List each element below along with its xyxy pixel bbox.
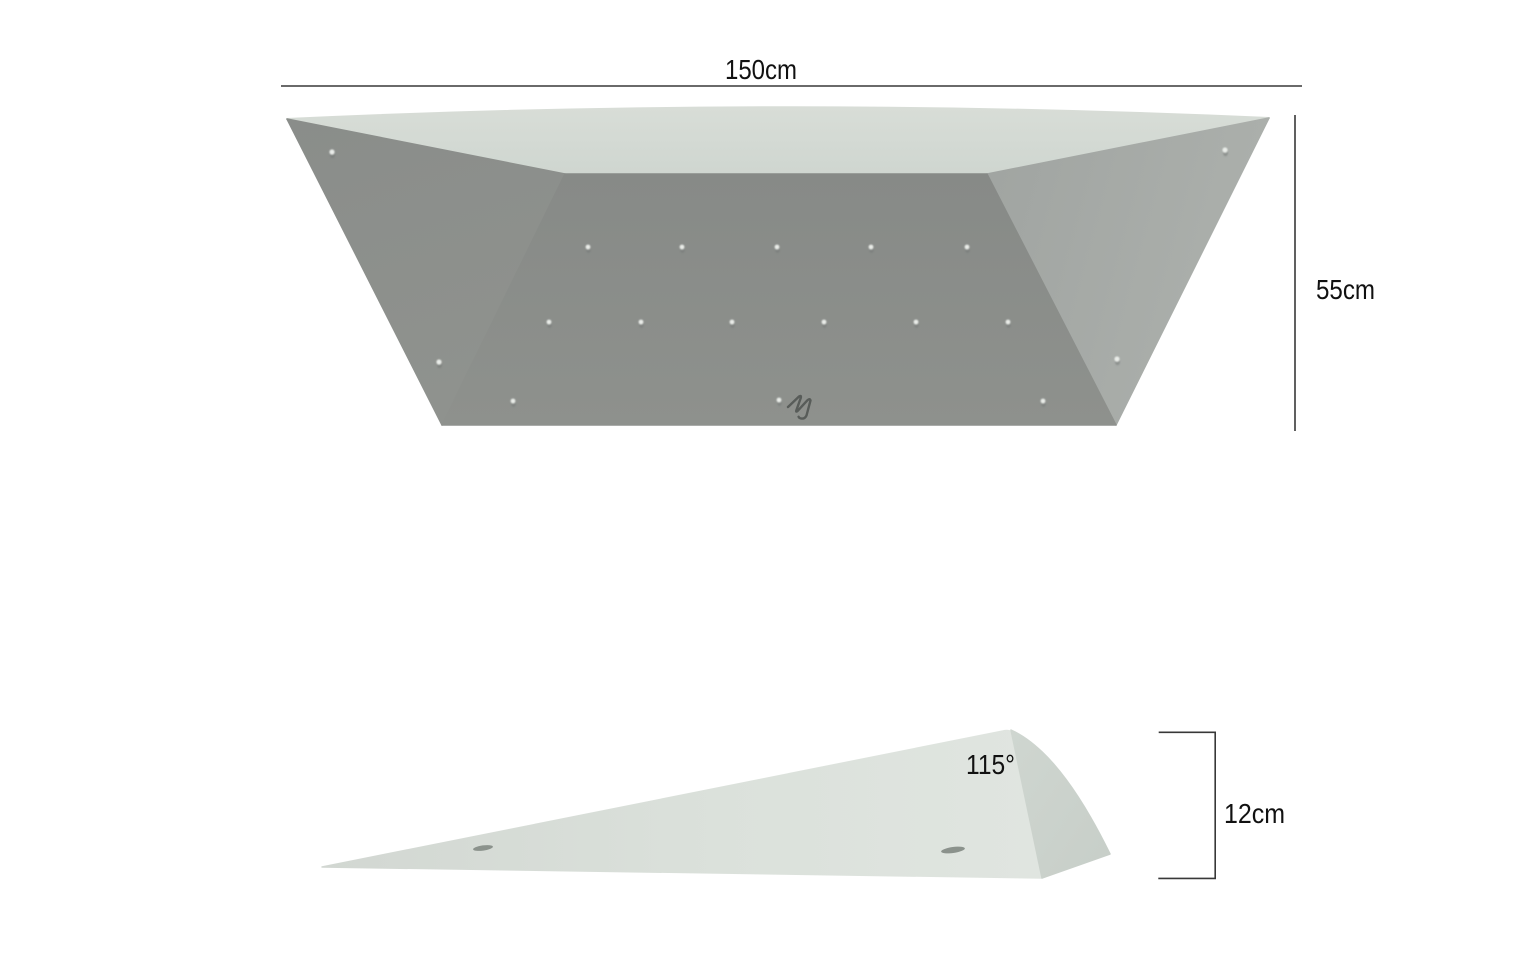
svg-text:55cm: 55cm [1316, 274, 1375, 305]
svg-text:115°: 115° [966, 749, 1015, 780]
svg-text:150cm: 150cm [725, 54, 797, 85]
svg-text:12cm: 12cm [1224, 798, 1285, 829]
